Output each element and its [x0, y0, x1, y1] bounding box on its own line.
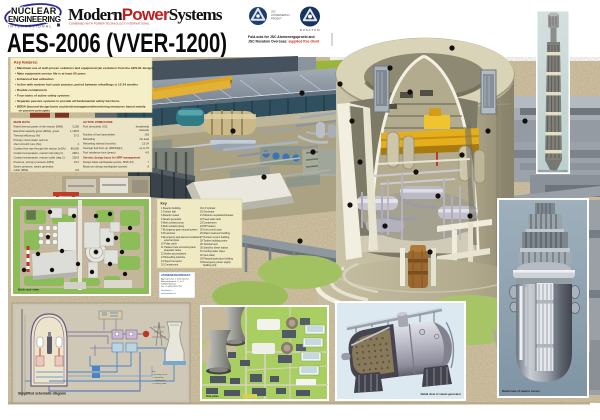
svg-text:On-load: On-load: [139, 137, 149, 141]
svg-text:10 Polar crane: 10 Polar crane: [161, 242, 177, 245]
svg-text:external pipes: external pipes: [164, 239, 180, 242]
svg-text:21 Moisture separator/reheate: 21 Moisture separator/reheater: [200, 214, 234, 217]
svg-text:ATOMENERGO-: ATOMENERGO-: [271, 13, 290, 17]
svg-text:Simplified schematic diagram: Simplified schematic diagram: [18, 392, 66, 396]
svg-text:outlet (MPa): outlet (MPa): [14, 168, 29, 172]
svg-text:15 Containment: 15 Containment: [161, 263, 179, 266]
svg-text:Key: Key: [161, 202, 167, 206]
svg-text:COMBINED WITH POWER TECHNOLOGY: COMBINED WITH POWER TECHNOLOGY INTERNATI…: [69, 22, 150, 26]
svg-text:Bakuninskaya ul. 7, str 1: Bakuninskaya ul. 7, str 1: [161, 280, 184, 283]
svg-text:--- steam line: --- steam line: [152, 376, 165, 379]
svg-text:20 Generator: 20 Generator: [200, 211, 215, 214]
svg-text:cassette: cassette: [139, 128, 150, 132]
svg-text:Seismic design basis for NPP m: Seismic design basis for NPP management: [83, 156, 140, 160]
svg-text:16.2: 16.2: [74, 160, 80, 164]
svg-text:Detail view of reactor vessel: Detail view of reactor vessel: [502, 389, 540, 393]
svg-text:• Double containment: • Double containment: [15, 88, 47, 92]
svg-text:19 LP cylinder: 19 LP cylinder: [200, 207, 216, 210]
svg-text:4-5: 4-5: [145, 151, 149, 155]
svg-text:13 Refuelling machine: 13 Refuelling machine: [161, 256, 186, 259]
svg-text:Design basis earthquake (point: Design basis earthquake (points, MSK-64): [83, 160, 134, 164]
svg-text:3 Reactor vessel: 3 Reactor vessel: [161, 214, 180, 217]
svg-text:Fuel residence time (years): Fuel residence time (years): [83, 151, 116, 155]
svg-text:25 Unit control room: 25 Unit control room: [200, 229, 222, 232]
svg-text:14 Spent fuel pond: 14 Spent fuel pond: [161, 260, 182, 263]
svg-text:Coolant temperature, reactor i: Coolant temperature, reactor inlet (deg …: [14, 151, 64, 155]
svg-text:• Enhanced fuel utilisation: • Enhanced fuel utilisation: [15, 77, 54, 81]
svg-text:Fold-outs for JSC Atomenergopr: Fold-outs for JSC Atomenergoproekt and: [248, 35, 315, 39]
svg-text:28 Turbine building crane: 28 Turbine building crane: [200, 239, 228, 242]
svg-text:ENGINEERING: ENGINEERING: [8, 15, 61, 24]
svg-text:ACTIVE ZONE/CORE: ACTIVE ZONE/CORE: [83, 120, 113, 124]
svg-text:• Main equipment service life: • Main equipment service life is at leas…: [15, 72, 86, 76]
svg-text:deaerator tanks: deaerator tanks: [164, 249, 182, 252]
svg-text:7 Emergency gas removal syst: 7 Emergency gas removal system: [161, 229, 198, 232]
svg-text:3,200: 3,200: [72, 125, 79, 129]
svg-text:--- cooling water: --- cooling water: [152, 382, 167, 385]
svg-text:Primary circuit water, self-ru: Primary circuit water, self-run: [14, 138, 49, 142]
svg-text:--- primary circuit: --- primary circuit: [152, 373, 167, 376]
svg-text:26 Water treatment building: 26 Water treatment building: [200, 232, 230, 235]
svg-text:22 Feed water tank: 22 Feed water tank: [200, 218, 222, 221]
svg-text:Detail view of steam generator: Detail view of steam generator: [421, 392, 462, 396]
svg-text:info@aep.ru: info@aep.ru: [161, 289, 173, 292]
svg-text:5 Main coolant pump: 5 Main coolant pump: [161, 221, 184, 224]
svg-text:Electrical capacity gross (MWe: Electrical capacity gross (MWe), gross: [14, 129, 60, 133]
svg-text:Fuel (enriched) UO2: Fuel (enriched) UO2: [83, 125, 108, 129]
svg-text:Refuelling: Refuelling: [83, 137, 95, 141]
svg-text:33 Physical protection buildi: 33 Physical protection building: [200, 257, 234, 260]
svg-text:Coolant flow rate through the: Coolant flow rate through the reactor (m…: [14, 147, 66, 151]
svg-text:86,000: 86,000: [71, 147, 80, 151]
svg-text:37.5: 37.5: [74, 134, 80, 138]
svg-text:328.8: 328.8: [72, 156, 79, 160]
svg-text:Refuelling interval (months): Refuelling interval (months): [83, 142, 116, 146]
svg-text:163: 163: [145, 133, 150, 137]
svg-text:MAIN DATA: MAIN DATA: [14, 120, 31, 124]
svg-text:23 Condensers: 23 Condensers: [200, 221, 217, 224]
svg-text:30 Stand-by diesel station: 30 Stand-by diesel station: [200, 247, 229, 250]
svg-text:1,198.8: 1,198.8: [70, 129, 79, 133]
svg-text:8 Pressuriser: 8 Pressuriser: [161, 232, 176, 235]
svg-text:29 Transformers: 29 Transformers: [200, 243, 219, 246]
svg-text:Thermal efficiency (%): Thermal efficiency (%): [14, 134, 41, 138]
svg-text:24 HP heaters: 24 HP heaters: [200, 225, 216, 228]
svg-text:Coolant temperature, reactor o: Coolant temperature, reactor outlet (deg…: [14, 156, 65, 160]
svg-text:12 Hydro accumulators: 12 Hydro accumulators: [161, 253, 187, 256]
svg-text:up to 70: up to 70: [139, 146, 149, 150]
svg-text:2 Turbine hall: 2 Turbine hall: [161, 211, 176, 214]
svg-text:hexahedral: hexahedral: [136, 125, 150, 129]
svg-text:Rated thermal power of the rea: Rated thermal power of the reactor (MWt): [14, 125, 64, 129]
svg-text:6 Main coolant piping: 6 Main coolant piping: [161, 225, 185, 228]
svg-text:Pressure, primary pressure (MP: Pressure, primary pressure (MPa): [14, 160, 55, 164]
svg-text:Number of fuel assemblies: Number of fuel assemblies: [83, 133, 115, 137]
svg-text:Detail view of fuel assembly: Detail view of fuel assembly: [538, 170, 568, 173]
svg-text:12-24: 12-24: [142, 142, 149, 146]
svg-text:PROEKT: PROEKT: [271, 17, 282, 21]
svg-text:6.8: 6.8: [75, 168, 79, 172]
svg-text:ROSATOM: ROSATOM: [300, 28, 321, 32]
svg-text:Key features:: Key features:: [14, 61, 38, 65]
svg-text:32 Vent stack: 32 Vent stack: [200, 254, 215, 257]
svg-text:31 Cooling water pipes: 31 Cooling water pipes: [200, 250, 226, 253]
svg-text:--- condensate: --- condensate: [152, 379, 166, 382]
svg-text:Maximum design earthquake (poi: Maximum design earthquake (points): [83, 165, 127, 169]
svg-text:Key: Key: [152, 371, 155, 373]
svg-text:ATOMENERGOPROEKT: ATOMENERGOPROEKT: [161, 273, 191, 277]
svg-text:4 Steam generator: 4 Steam generator: [161, 218, 181, 221]
svg-text:Steam pressure, steam generato: Steam pressure, steam generator: [14, 165, 54, 169]
svg-text:JSC: JSC: [271, 10, 276, 14]
svg-text:AES-2006 (VVER-1200): AES-2006 (VVER-1200): [7, 28, 227, 58]
svg-text:on passive principles: on passive principles: [19, 109, 51, 113]
svg-text:27 Nuclear service building: 27 Nuclear service building: [200, 236, 230, 239]
svg-text:298.2: 298.2: [72, 151, 79, 155]
svg-text:building (x4): building (x4): [203, 264, 216, 267]
svg-text:Tel: +7 (495) 263 7701: Tel: +7 (495) 263 7701: [161, 286, 183, 288]
svg-text:1 Reactor building: 1 Reactor building: [161, 207, 181, 210]
svg-text:• In line with modern fuel cy: • In line with modern fuel cycle practic…: [15, 83, 138, 87]
svg-text:ModernPowerSystems: ModernPowerSystems: [68, 5, 223, 24]
svg-text:Average fuel burn-up (MWd/kgU): Average fuel burn-up (MWd/kgU): [83, 146, 122, 150]
svg-text:• Four trains of active safet: • Four trains of active safety systems: [15, 94, 70, 98]
svg-text:www.rosatom.ru: www.rosatom.ru: [161, 292, 177, 295]
svg-text:• Separate passive systems to: • Separate passive systems to provide al…: [15, 99, 120, 103]
svg-text:Site plan: Site plan: [206, 394, 219, 398]
svg-text:Birds eye view: Birds eye view: [18, 288, 40, 292]
svg-text:• Maximum use of well-proven: • Maximum use of well-proven solutions a…: [15, 66, 153, 70]
svg-text:short circuit/it runs (No): short circuit/it runs (No): [14, 142, 42, 146]
svg-text:Agency house 1, International: Agency house 1, International: [161, 277, 189, 280]
svg-text:JSC Rosatom Overseas: supplied: JSC Rosatom Overseas: supplied free clie…: [248, 40, 320, 44]
